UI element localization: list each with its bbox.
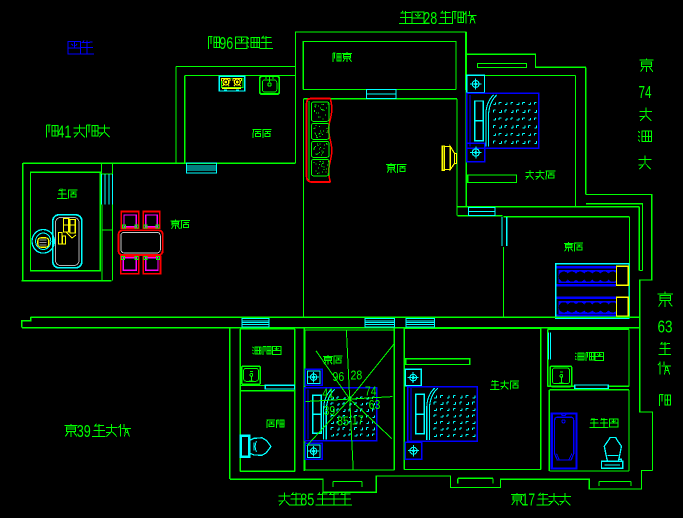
svg-text:28: 28 <box>423 8 437 28</box>
svg-text:85: 85 <box>300 490 314 510</box>
svg-text:63: 63 <box>658 317 673 337</box>
svg-text:96: 96 <box>333 369 345 384</box>
svg-text:96: 96 <box>219 33 233 53</box>
svg-text:41: 41 <box>57 122 71 142</box>
svg-text:17: 17 <box>522 490 536 510</box>
svg-text:39: 39 <box>324 403 336 418</box>
svg-text:39: 39 <box>77 421 91 441</box>
svg-text:74: 74 <box>639 82 652 102</box>
svg-text:41: 41 <box>322 386 334 401</box>
svg-text:85: 85 <box>337 414 349 429</box>
svg-text:28: 28 <box>351 368 363 383</box>
svg-text:63: 63 <box>369 397 381 412</box>
svg-text:17: 17 <box>352 412 364 427</box>
